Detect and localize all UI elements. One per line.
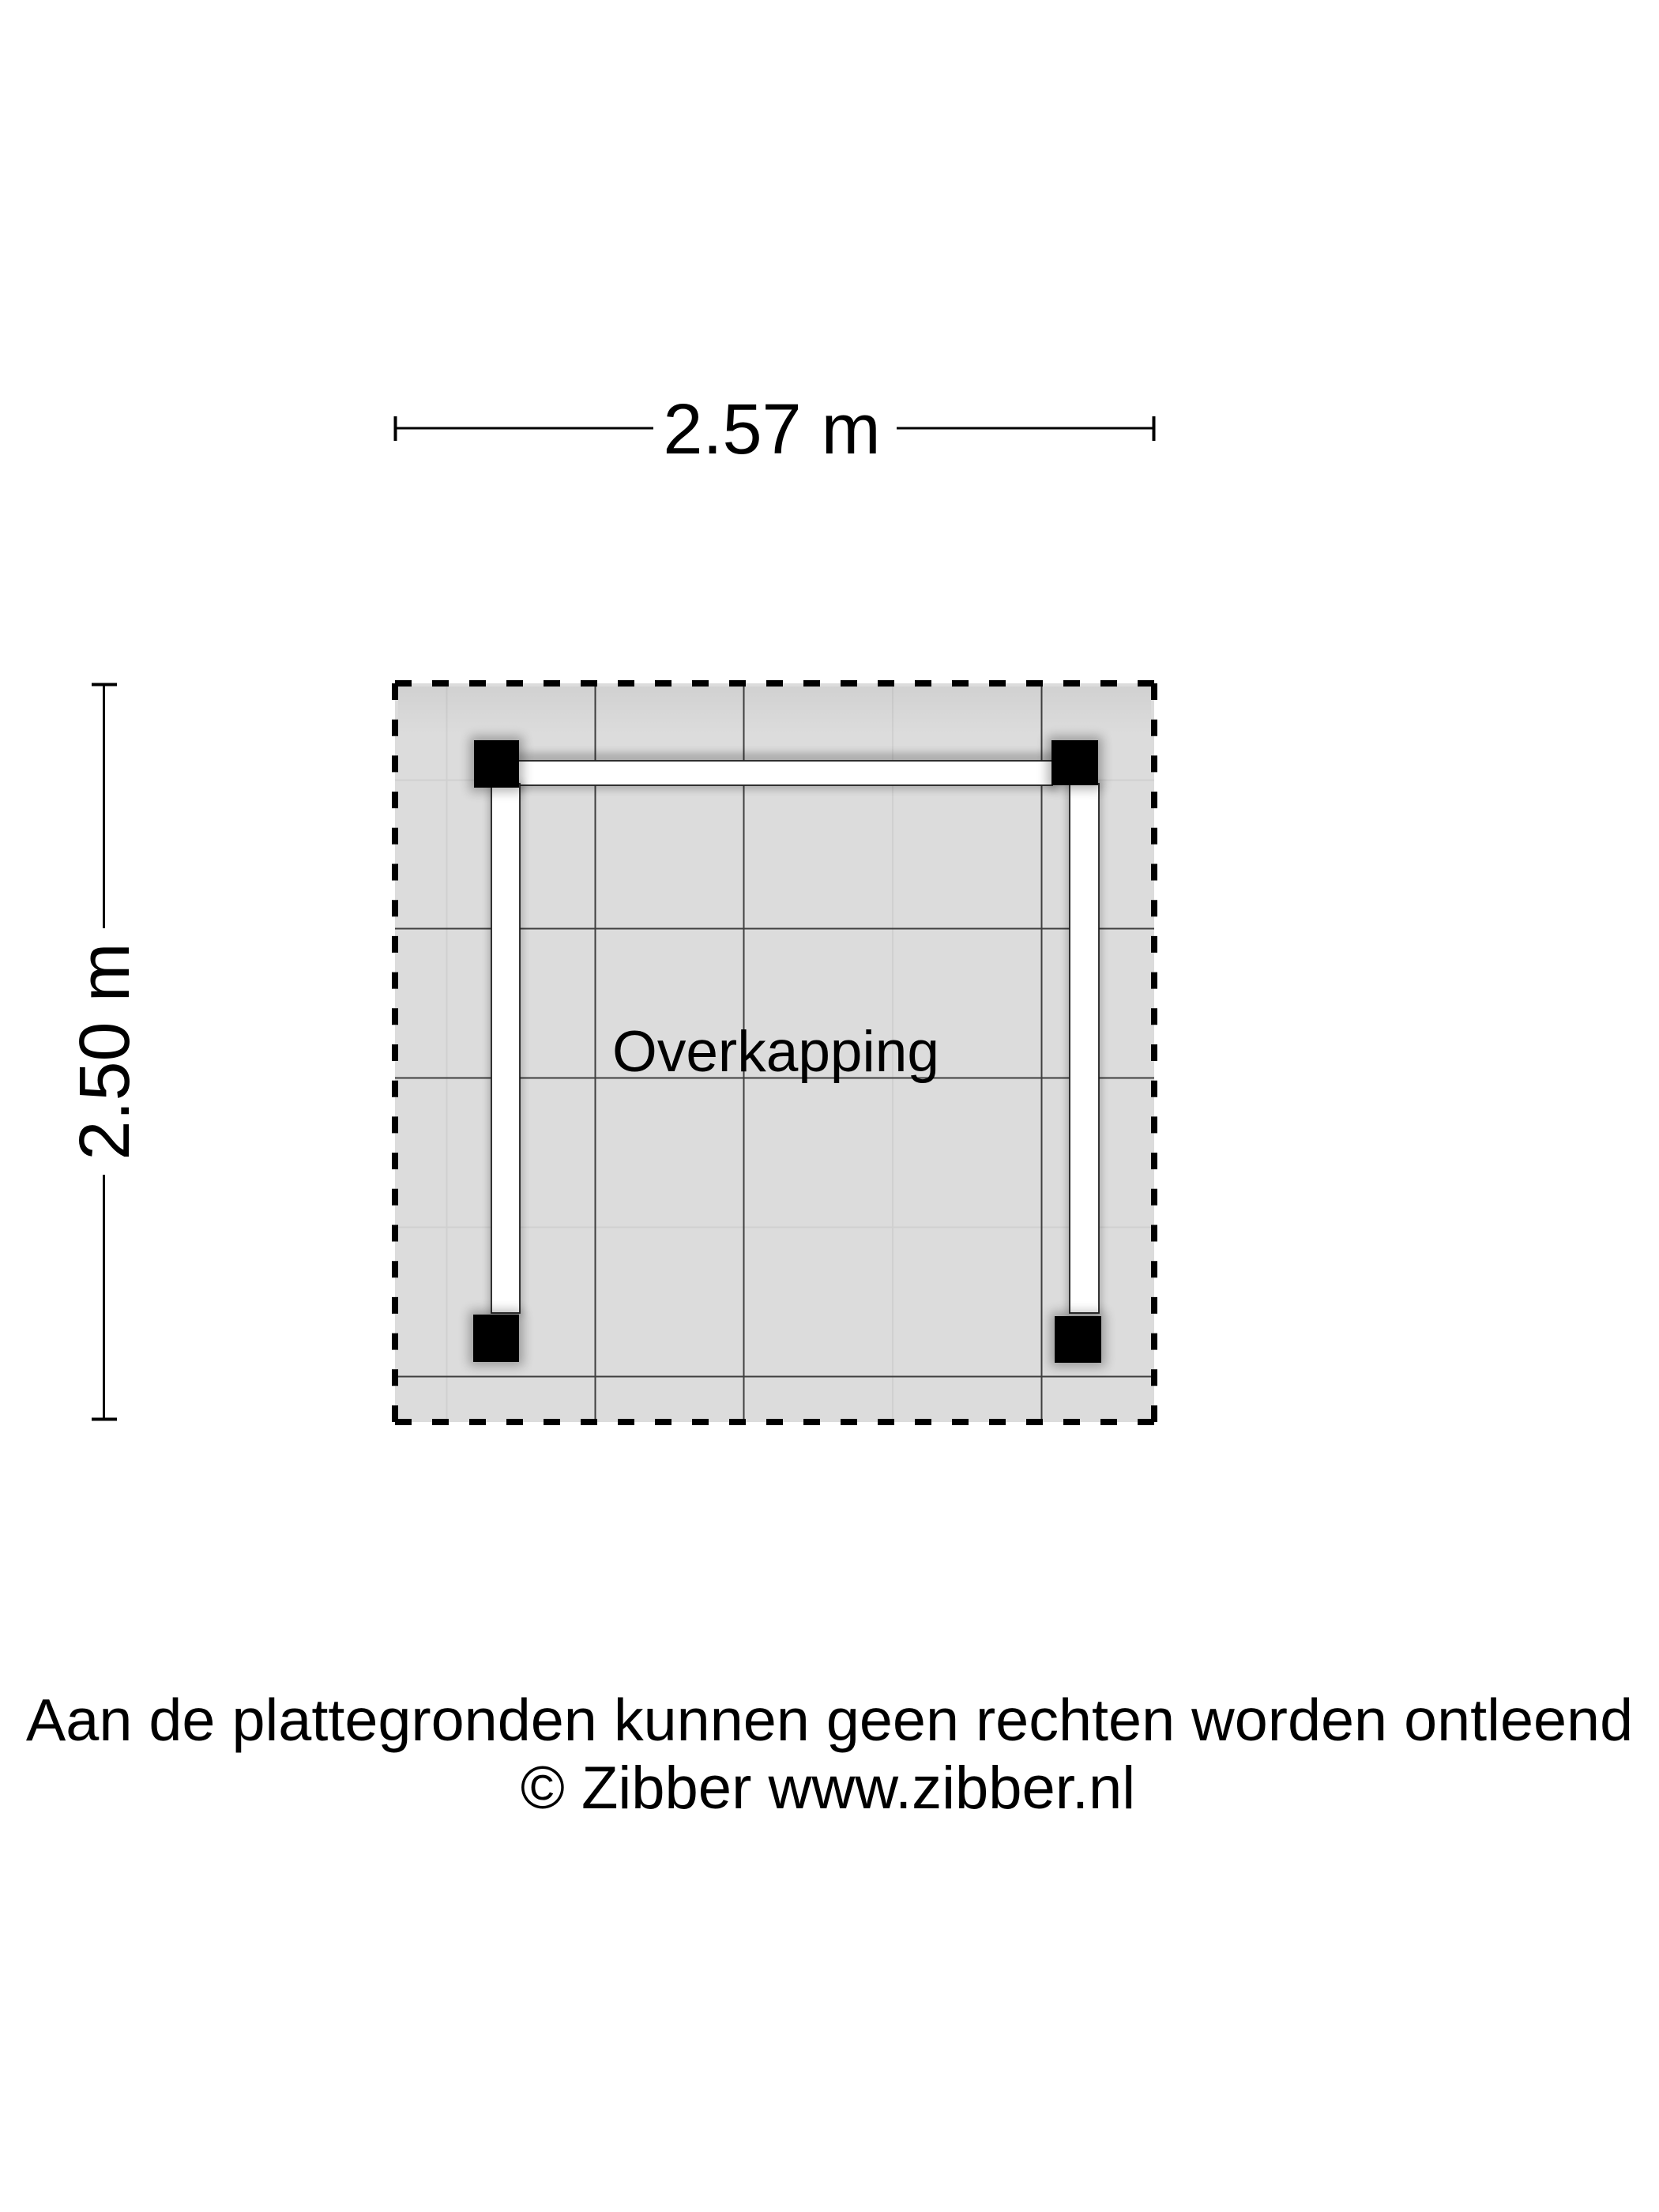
svg-text:2.50 m: 2.50 m	[66, 942, 145, 1160]
svg-text:Aan de plattegronden kunnen ge: Aan de plattegronden kunnen geen rechten…	[26, 1687, 1633, 1754]
svg-text:© Zibber www.zibber.nl: © Zibber www.zibber.nl	[521, 1755, 1135, 1822]
svg-text:2.57 m: 2.57 m	[663, 390, 880, 469]
svg-text:Overkapping: Overkapping	[612, 1020, 939, 1084]
